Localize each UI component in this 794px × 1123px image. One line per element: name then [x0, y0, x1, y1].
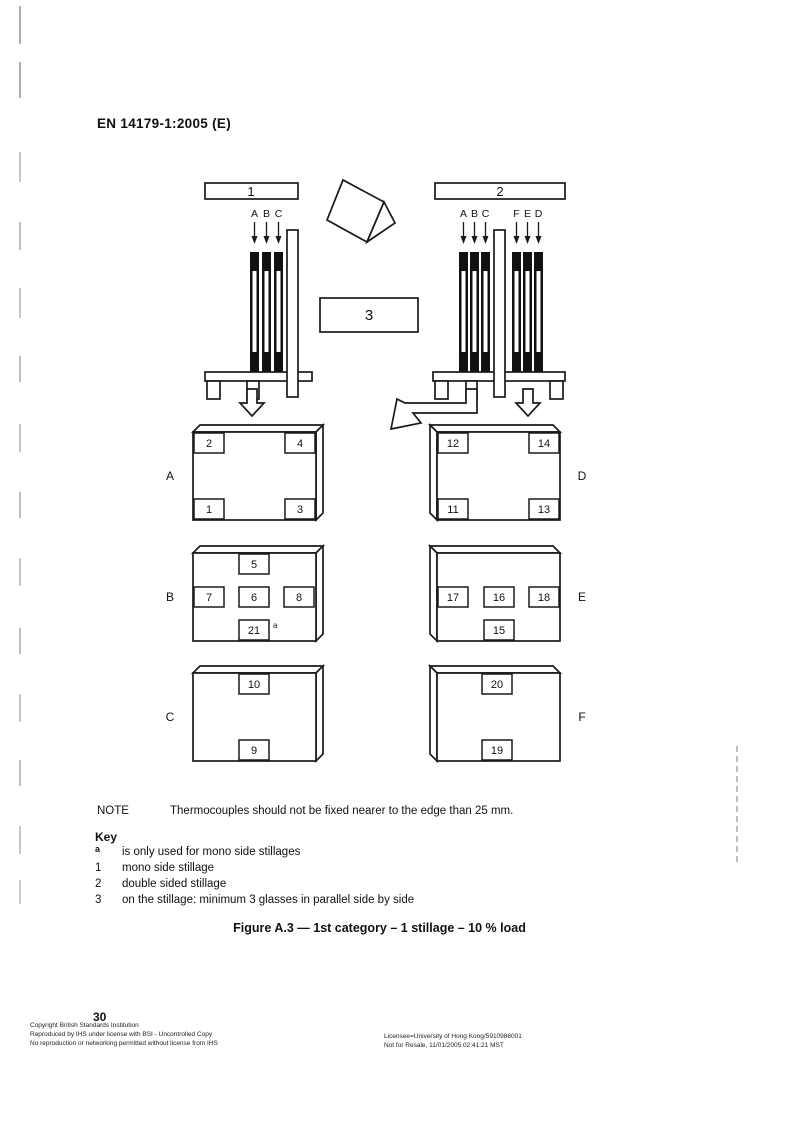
- down-arrow-icon: [525, 222, 531, 244]
- key-item: a is only used for mono side stillages: [95, 846, 414, 862]
- footer-line: Reproduced by IHS under license with BSI…: [30, 1030, 218, 1039]
- glasses-callout: 3: [320, 298, 418, 332]
- thermocouple-number: 6: [251, 592, 257, 604]
- footnote-marker: a: [273, 621, 278, 630]
- glass-label-a: A: [251, 208, 258, 220]
- stillage-1-label: 1: [247, 184, 254, 199]
- key-symbol: 1: [95, 862, 122, 874]
- panel-top-edge: [193, 425, 323, 432]
- glass-sheet: [512, 252, 521, 372]
- panel-B: 5 7 6 8 21 a B: [166, 546, 323, 641]
- thermocouple-number: 1: [206, 504, 212, 516]
- note: NOTE Thermocouples should not be fixed n…: [97, 805, 513, 817]
- glass-sheet: [262, 252, 271, 372]
- panel-side-edge: [430, 666, 437, 761]
- thermocouple-number: 7: [206, 592, 212, 604]
- glass-label-c: C: [275, 208, 283, 220]
- down-arrow-icon: [514, 222, 520, 244]
- key-item: 1 mono side stillage: [95, 862, 414, 878]
- stillage-2-label: 2: [496, 184, 503, 199]
- glass-label-e: E: [524, 208, 531, 220]
- thermocouple-number: 19: [491, 745, 503, 757]
- down-arrow-icon: [536, 222, 542, 244]
- footer-line: Copyright British Standards Institution: [30, 1021, 218, 1030]
- glass-label-c2: C: [482, 208, 490, 220]
- panel-letter: C: [166, 710, 175, 724]
- panel-letter: F: [578, 710, 585, 724]
- note-label: NOTE: [97, 805, 170, 817]
- note-text: Thermocouples should not be fixed nearer…: [170, 805, 513, 817]
- stillage-2-upright: [494, 230, 505, 397]
- panel-letter: B: [166, 590, 174, 604]
- panel-side-edge: [316, 666, 323, 761]
- thermocouple-number: 20: [491, 679, 503, 691]
- figure-a3-diagram: 1 A B C 3: [0, 0, 794, 1123]
- thermocouple-number: 13: [538, 504, 550, 516]
- key-title: Key: [95, 830, 117, 844]
- key-item: 3 on the stillage: minimum 3 glasses in …: [95, 894, 414, 910]
- thermocouple-number: 12: [447, 438, 459, 450]
- figure-caption: Figure A.3 — 1st category – 1 stillage –…: [97, 921, 662, 935]
- glass-label-f: F: [513, 208, 519, 220]
- glass-sheet: [523, 252, 532, 372]
- thermocouple-number: 3: [297, 504, 303, 516]
- down-arrow-icon: [472, 222, 478, 244]
- down-arrow-icon: [264, 222, 270, 244]
- thermocouple-number: 8: [296, 592, 302, 604]
- big-down-arrow-icon: [240, 389, 264, 416]
- key-symbol: 2: [95, 878, 122, 890]
- down-arrow-icon: [461, 222, 467, 244]
- down-arrow-icon: [252, 222, 258, 244]
- panel-E: 17 16 18 15 E: [430, 546, 586, 641]
- panel-top-edge: [430, 546, 560, 553]
- stillage-1-leg: [207, 381, 220, 399]
- thermocouple-number: 2: [206, 438, 212, 450]
- thermocouple-number: 4: [297, 438, 303, 450]
- glass-sheet: [459, 252, 468, 372]
- glass-label-b: B: [263, 208, 270, 220]
- panel-top-edge: [193, 546, 323, 553]
- footer-license-block: Licensee=University of Hong Kong/5910986…: [384, 1032, 522, 1050]
- glass-label-b2: B: [471, 208, 478, 220]
- key-symbol: a: [95, 844, 122, 854]
- thermocouple-number: 21: [248, 625, 260, 637]
- thermocouple-number: 10: [248, 679, 260, 691]
- thermocouple-number: 5: [251, 559, 257, 571]
- document-page: EN 14179-1:2005 (E) 1 A B C: [0, 0, 794, 1123]
- key-list: a is only used for mono side stillages 1…: [95, 846, 414, 910]
- glasses-callout-label: 3: [365, 307, 373, 324]
- stillage-1-upright: [287, 230, 298, 397]
- panel-A: 2 4 1 3 A: [166, 425, 323, 520]
- key-symbol: 3: [95, 894, 122, 906]
- key-text: mono side stillage: [122, 862, 214, 874]
- panel-F: 20 19 F: [430, 666, 586, 761]
- glass-sheet: [534, 252, 543, 372]
- thermocouple-number: 9: [251, 745, 257, 757]
- glass-sheet: [274, 252, 283, 372]
- panel-side-edge: [316, 425, 323, 520]
- stillage-2-leg: [550, 381, 563, 399]
- panel-side-edge: [316, 546, 323, 641]
- glass-sheet: [470, 252, 479, 372]
- key-text: on the stillage: minimum 3 glasses in pa…: [122, 894, 414, 906]
- thermocouple-number: 18: [538, 592, 550, 604]
- panel-letter: D: [578, 469, 587, 483]
- panel-side-edge: [430, 425, 437, 520]
- key-item: 2 double sided stillage: [95, 878, 414, 894]
- panel-D: 12 14 11 13 D: [430, 425, 587, 520]
- thermocouple-number: 14: [538, 438, 550, 450]
- panel-C: 10 9 C: [166, 666, 323, 761]
- panel-top-edge: [430, 666, 560, 673]
- down-arrow-icon: [483, 222, 489, 244]
- stillage-1: 1 A B C: [205, 183, 312, 416]
- glass-label-a2: A: [460, 208, 467, 220]
- big-down-arrow-icon: [516, 389, 540, 416]
- glass-sheet: [481, 252, 490, 372]
- footer-copyright-block: Copyright British Standards Institution …: [30, 1021, 218, 1048]
- glass-wedge-icon: [327, 180, 395, 242]
- stillage-2-leg: [435, 381, 448, 399]
- bent-left-arrow-icon: [391, 389, 477, 429]
- glass-sheet: [250, 252, 259, 372]
- thermocouple-number: 16: [493, 592, 505, 604]
- panel-side-edge: [430, 546, 437, 641]
- key-text: double sided stillage: [122, 878, 226, 890]
- footer-line: Not for Resale, 11/01/2005 02:41:21 MST: [384, 1041, 522, 1050]
- panel-top-edge: [430, 425, 560, 432]
- panel-top-edge: [193, 666, 323, 673]
- thermocouple-number: 15: [493, 625, 505, 637]
- glass-label-d: D: [535, 208, 543, 220]
- footer-line: No reproduction or networking permitted …: [30, 1039, 218, 1048]
- footer-line: Licensee=University of Hong Kong/5910986…: [384, 1032, 522, 1041]
- thermocouple-number: 11: [447, 504, 458, 516]
- thermocouple-number: 17: [447, 592, 459, 604]
- panel-letter: E: [578, 590, 586, 604]
- down-arrow-icon: [276, 222, 282, 244]
- panel-letter: A: [166, 469, 174, 483]
- key-text: is only used for mono side stillages: [122, 846, 300, 858]
